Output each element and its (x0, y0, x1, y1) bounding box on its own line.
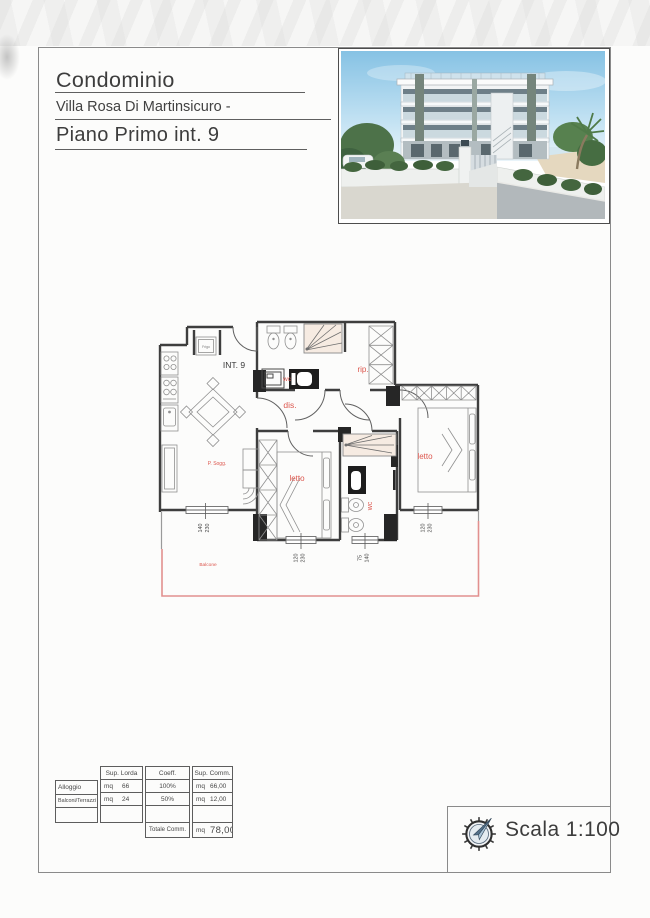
dim-living-h: 230 (205, 524, 211, 533)
bath-top-fixtures (262, 324, 342, 389)
toilet (289, 369, 319, 389)
cell-coeff-alloggio: 100% (146, 779, 189, 792)
row-label-balconi: Balconi/Terrazzi (56, 794, 97, 807)
fridge-label: Frigo (202, 345, 210, 349)
scale-box: Scala 1:100 (447, 806, 610, 872)
comm-value: 12,00 (210, 796, 226, 803)
mq-unit: mq (196, 783, 205, 790)
mq-unit: mq (104, 796, 113, 803)
row-label-empty (56, 807, 97, 820)
dining-table (181, 378, 246, 447)
building (397, 73, 553, 159)
total-label-cell: Totale Comm. (145, 822, 190, 838)
scale-label: Scala 1:100 (505, 818, 620, 842)
cell-comm-alloggio: mq66,00 (193, 779, 232, 792)
balcony-label: Balcone (199, 562, 217, 568)
dim-wc-w: 75 (358, 555, 364, 561)
storage-wardrobe (369, 326, 393, 384)
toilet-bidet (342, 498, 364, 532)
hall-label: dis. (283, 400, 296, 410)
bath-bottom-label: wc (367, 501, 374, 511)
unit-label: INT. 9 (223, 360, 245, 370)
compass-rose-icon (460, 815, 498, 853)
mq-unit: mq (196, 827, 205, 834)
building-photo (338, 48, 610, 224)
total-value: 78,00 (210, 825, 232, 836)
area-table-comm-column: Sup. Comm. mq66,00 mq12,00 (192, 766, 233, 823)
dim-bedmid-w: 120 (294, 554, 300, 563)
title-rule-1 (55, 92, 305, 93)
building-rendering-image (341, 51, 605, 219)
kitchen-units (161, 352, 178, 492)
living-label: P. Sogg. (208, 461, 227, 467)
shower (304, 324, 342, 353)
cell-comm-empty (193, 805, 232, 818)
dim-bedmid-h: 230 (301, 554, 307, 563)
lorda-value: 66 (122, 783, 129, 790)
scanner-noise-band (0, 0, 650, 46)
windows (186, 507, 442, 544)
cell-lorda-balconi: mq24 (101, 792, 142, 805)
total-value-row: mq78,00 (193, 823, 232, 837)
dim-bedright-w: 120 (421, 524, 427, 533)
cell-coeff-empty (146, 805, 189, 818)
bed-mid (277, 452, 331, 538)
title-rule-3 (55, 149, 307, 150)
lorda-value: 24 (122, 796, 129, 803)
cell-coeff-balconi: 50% (146, 792, 189, 805)
scanned-floorplan-sheet: Condominio Villa Rosa Di Martinsicuro - … (0, 0, 650, 918)
cell-lorda-alloggio: mq66 (101, 779, 142, 792)
total-label: Totale Comm. (146, 823, 189, 837)
header-coeff: Coeff. (146, 767, 189, 779)
washing-machine (262, 369, 284, 388)
dim-living-w: 140 (198, 524, 204, 533)
bedroom-mid-label: letto (289, 474, 305, 483)
header-sup-comm: Sup. Comm. (193, 767, 232, 779)
area-table-lorda-column: Sup. Lorda mq66 mq24 (100, 766, 143, 823)
cell-comm-balconi: mq12,00 (193, 792, 232, 805)
title-rule-2 (55, 119, 331, 120)
row-label-alloggio: Alloggio (56, 781, 97, 794)
bath-top-label: wc (282, 376, 292, 383)
total-value-cell: mq78,00 (192, 822, 233, 838)
bedroom-right-label: letto (417, 452, 433, 461)
dim-bedright-h: 230 (428, 524, 434, 533)
dim-wc-h: 140 (365, 554, 371, 563)
header-sup-lorda: Sup. Lorda (101, 767, 142, 779)
floor-plan: 140 230 120 230 75 140 120 230 INT. 9 Fr… (140, 300, 500, 620)
mq-unit: mq (196, 796, 205, 803)
title-building-name: Villa Rosa Di Martinsicuro - (56, 99, 231, 115)
floor-plan-drawing: 140 230 120 230 75 140 120 230 INT. 9 Fr… (140, 300, 500, 620)
title-building-type: Condominio (56, 68, 175, 93)
cell-lorda-empty (101, 805, 142, 818)
title-floor-unit: Piano Primo int. 9 (56, 124, 219, 147)
bed-right (418, 408, 476, 492)
pavement (341, 182, 497, 219)
area-table-coeff-column: Coeff. 100% 50% (145, 766, 190, 823)
mq-unit: mq (104, 783, 113, 790)
area-table-label-column: Alloggio Balconi/Terrazzi (55, 780, 98, 823)
storage-label: rip. (357, 365, 368, 374)
comm-value: 66,00 (210, 783, 226, 790)
